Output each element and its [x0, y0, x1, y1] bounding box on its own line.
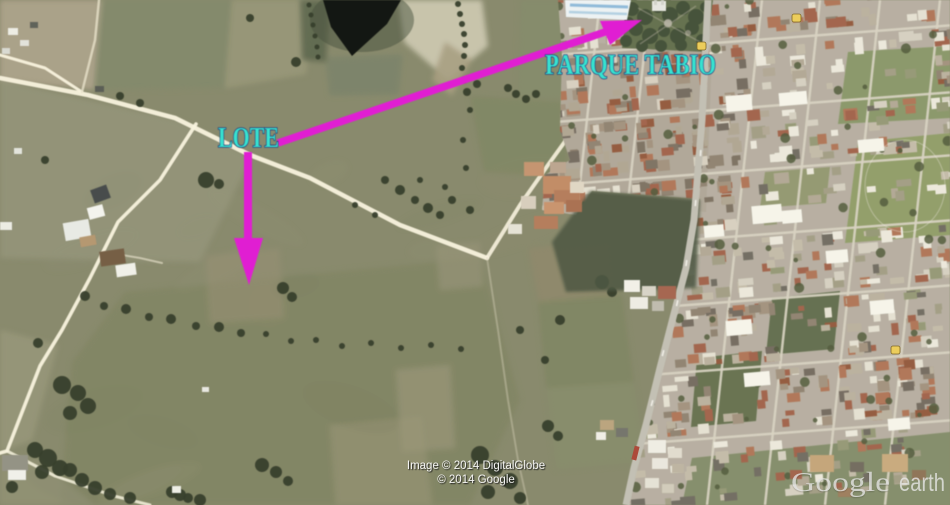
svg-text:Image © 2014 DigitalGlobe: Image © 2014 DigitalGlobe [407, 460, 545, 472]
svg-text:© 2014 Google: © 2014 Google [437, 474, 515, 486]
svg-text:PARQUE TABIO: PARQUE TABIO [545, 49, 716, 81]
svg-text:Google: Google [791, 467, 890, 497]
svg-text:earth: earth [899, 469, 945, 497]
svg-text:LOTE: LOTE [218, 122, 279, 154]
